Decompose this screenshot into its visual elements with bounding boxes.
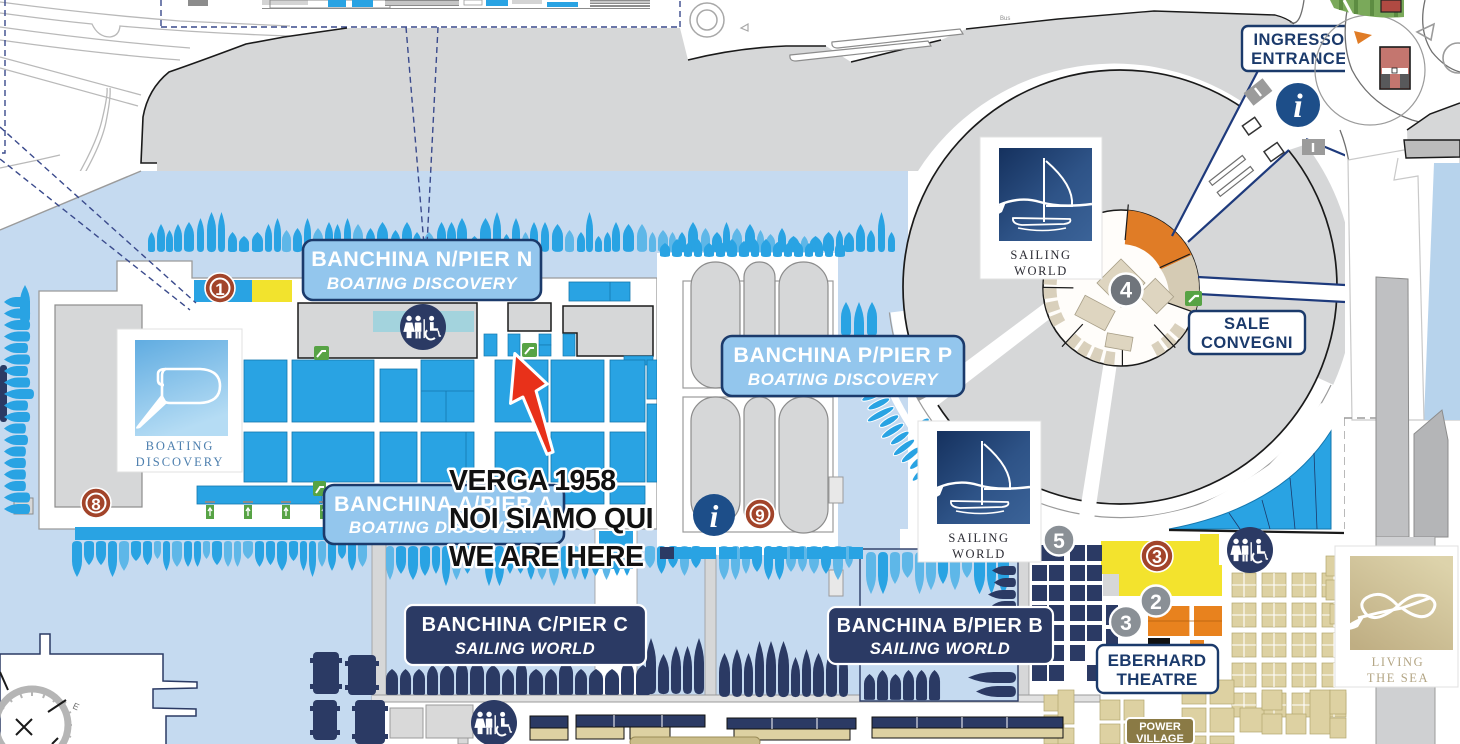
svg-text:9: 9 — [755, 506, 764, 525]
svg-text:1: 1 — [215, 280, 224, 299]
svg-text:EBERHARD: EBERHARD — [1108, 651, 1207, 670]
svg-text:SAILING: SAILING — [948, 531, 1009, 545]
svg-text:2: 2 — [1150, 591, 1162, 614]
svg-text:i: i — [710, 498, 719, 534]
svg-text:DISCOVERY: DISCOVERY — [136, 455, 225, 469]
svg-text:WE ARE HERE: WE ARE HERE — [449, 541, 644, 573]
svg-text:BANCHINA N/PIER N: BANCHINA N/PIER N — [311, 247, 533, 271]
svg-text:i: i — [1293, 88, 1303, 125]
svg-text:THEATRE: THEATRE — [1116, 670, 1197, 689]
svg-text:8: 8 — [91, 495, 100, 514]
svg-text:BOATING DISCOVERY: BOATING DISCOVERY — [748, 370, 939, 389]
svg-text:BANCHINA P/PIER P: BANCHINA P/PIER P — [733, 343, 952, 367]
svg-text:WORLD: WORLD — [1014, 264, 1068, 278]
svg-text:BOATING DISCOVERY: BOATING DISCOVERY — [327, 274, 518, 293]
svg-text:VERGA 1958: VERGA 1958 — [449, 465, 616, 497]
svg-text:VILLAGE: VILLAGE — [1136, 733, 1184, 744]
svg-text:CONVEGNI: CONVEGNI — [1201, 334, 1293, 352]
svg-text:POWER: POWER — [1139, 721, 1181, 733]
svg-text:BANCHINA C/PIER C: BANCHINA C/PIER C — [422, 614, 629, 636]
svg-text:5: 5 — [1053, 530, 1065, 553]
svg-text:BANCHINA B/PIER B: BANCHINA B/PIER B — [837, 615, 1044, 637]
svg-text:LIVING: LIVING — [1372, 655, 1425, 669]
svg-text:THE SEA: THE SEA — [1367, 671, 1429, 685]
svg-text:NOI SIAMO QUI: NOI SIAMO QUI — [449, 503, 653, 535]
svg-text:ENTRANCE: ENTRANCE — [1251, 50, 1347, 68]
svg-text:Bus: Bus — [1000, 16, 1010, 22]
svg-text:4: 4 — [1120, 278, 1133, 303]
svg-text:SAILING: SAILING — [1010, 248, 1071, 262]
svg-text:SALE: SALE — [1224, 315, 1270, 333]
svg-text:3: 3 — [1152, 547, 1162, 567]
svg-text:WORLD: WORLD — [952, 547, 1006, 561]
svg-text:BOATING: BOATING — [146, 439, 215, 453]
svg-text:3: 3 — [1120, 612, 1132, 635]
svg-text:SAILING WORLD: SAILING WORLD — [870, 640, 1010, 658]
svg-text:INGRESSO: INGRESSO — [1253, 31, 1344, 49]
svg-text:SAILING WORLD: SAILING WORLD — [455, 640, 595, 658]
